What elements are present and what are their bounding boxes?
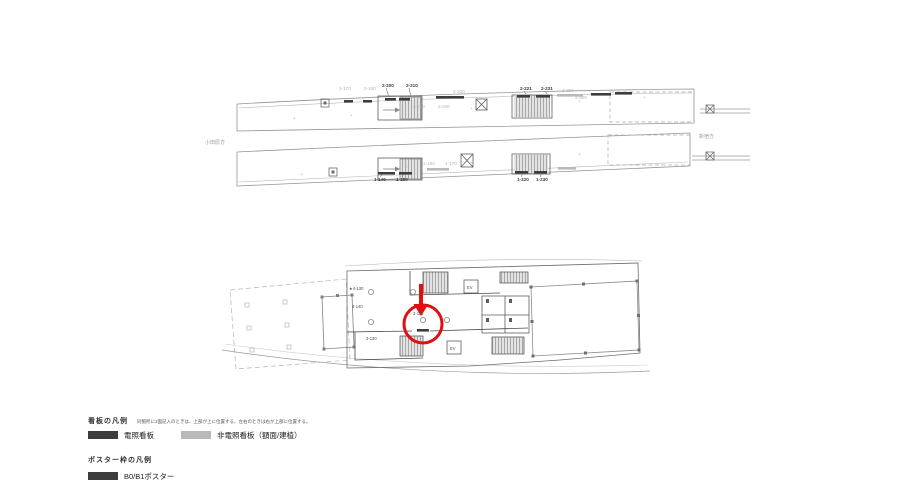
- lit-sign-mark: [378, 172, 395, 175]
- dashed-zone: [230, 279, 350, 369]
- track-stub: [700, 105, 750, 113]
- drawing-label: 4-140: [352, 304, 363, 309]
- drawing-label: 1-230: [536, 177, 548, 182]
- lit-sign-mark: [399, 98, 410, 101]
- signs-legend-title: 看板の凡例: [88, 416, 128, 426]
- drawing-label: 1-160: [423, 161, 435, 166]
- platform-2-plan: [237, 133, 750, 186]
- concourse-floor-plan: [222, 259, 650, 373]
- drawing-label: 2-200: [382, 83, 394, 88]
- drawing-label: 2-180: [364, 86, 376, 91]
- unlit-sign-label: 非電照看板（額面/建植）: [217, 430, 302, 441]
- lit-sign-mark: [515, 171, 528, 174]
- drawing-label: EV: [450, 346, 456, 351]
- platform-1-plan: [237, 88, 750, 131]
- poster-frame-label: B0/B1ポスター: [124, 471, 174, 482]
- lit-sign-mark: [534, 171, 547, 174]
- drawing-label: +: [470, 160, 473, 165]
- drawing-label: EV: [467, 285, 473, 290]
- lit-sign-mark: [344, 100, 353, 103]
- drawing-label: 2-221: [520, 86, 532, 91]
- drawing-label: +: [470, 106, 473, 111]
- right-hall: [530, 280, 641, 358]
- legend: 看板の凡例 同箇所に2面記入のときは、上部が上に位置する。左右のときは右が上部に…: [88, 416, 311, 481]
- side-room: [321, 294, 356, 351]
- drawing-label: 小田原方: [205, 139, 225, 146]
- drawing-label: ★4-130: [349, 286, 364, 291]
- lit-sign-mark: [417, 329, 429, 332]
- lit-sign-mark: [536, 95, 550, 98]
- unlit-sign-mark: [558, 167, 576, 170]
- lit-sign-mark: [399, 172, 412, 175]
- unlit-sign-mark: [427, 168, 449, 171]
- drawing-label: 2-300: [575, 95, 587, 100]
- poster-frame-swatch: [88, 472, 118, 480]
- signs-legend-note: 同箇所に2面記入のときは、上部が上に位置する。左右のときは右が上部に位置する。: [137, 419, 311, 425]
- lit-sign-label: 電照看板: [124, 430, 154, 441]
- lit-sign-mark: [591, 93, 611, 96]
- drawing-label: +: [350, 113, 353, 118]
- drawing-label: 1-220: [517, 177, 529, 182]
- lit-sign-swatch: [88, 431, 118, 439]
- drawing-label: 1-150: [396, 177, 408, 182]
- lit-sign-mark: [385, 98, 396, 101]
- drawing-label: +: [643, 95, 646, 100]
- lit-sign-mark: [363, 100, 372, 103]
- stairs-hatch: [500, 272, 528, 283]
- drawing-label: 2-260: [562, 88, 574, 93]
- drawing-label: 3-110: [413, 311, 424, 316]
- stairs-structure: [512, 95, 552, 118]
- drawing-label: 2-220: [413, 104, 425, 109]
- lit-sign-mark: [436, 96, 464, 99]
- unlit-sign-swatch: [181, 431, 211, 439]
- drawing-label: +: [300, 172, 303, 177]
- lit-sign-mark: [615, 92, 632, 95]
- drawing-label: +: [578, 152, 581, 157]
- drawing-label: 2-170: [339, 86, 351, 91]
- drawing-label: 新宿方: [699, 133, 714, 140]
- lit-sign-mark: [517, 95, 530, 98]
- drawing-label: 1-140: [374, 177, 386, 182]
- drawing-label: 2-240: [438, 104, 450, 109]
- drawing-label: +: [405, 164, 408, 169]
- drawing-label: 2-210: [406, 83, 418, 88]
- stairs-hatch: [492, 337, 524, 354]
- stairs-hatch: [423, 272, 448, 293]
- track-stub: [692, 152, 750, 160]
- drawing-label: 2-231: [541, 86, 553, 91]
- signage-plan-page: 2-1702-1802-2002-2102-2302-2202-2402-221…: [0, 0, 919, 491]
- restroom-rooms: [482, 296, 529, 333]
- poster-legend-title: ポスター枠の凡例: [88, 457, 152, 464]
- drawing-label: 3-130: [366, 336, 377, 341]
- drawing-label: +: [293, 116, 296, 121]
- drawing-label: 1-170: [445, 161, 457, 166]
- drawing-label: 2-230: [453, 89, 465, 94]
- drawing-label: +: [578, 99, 581, 104]
